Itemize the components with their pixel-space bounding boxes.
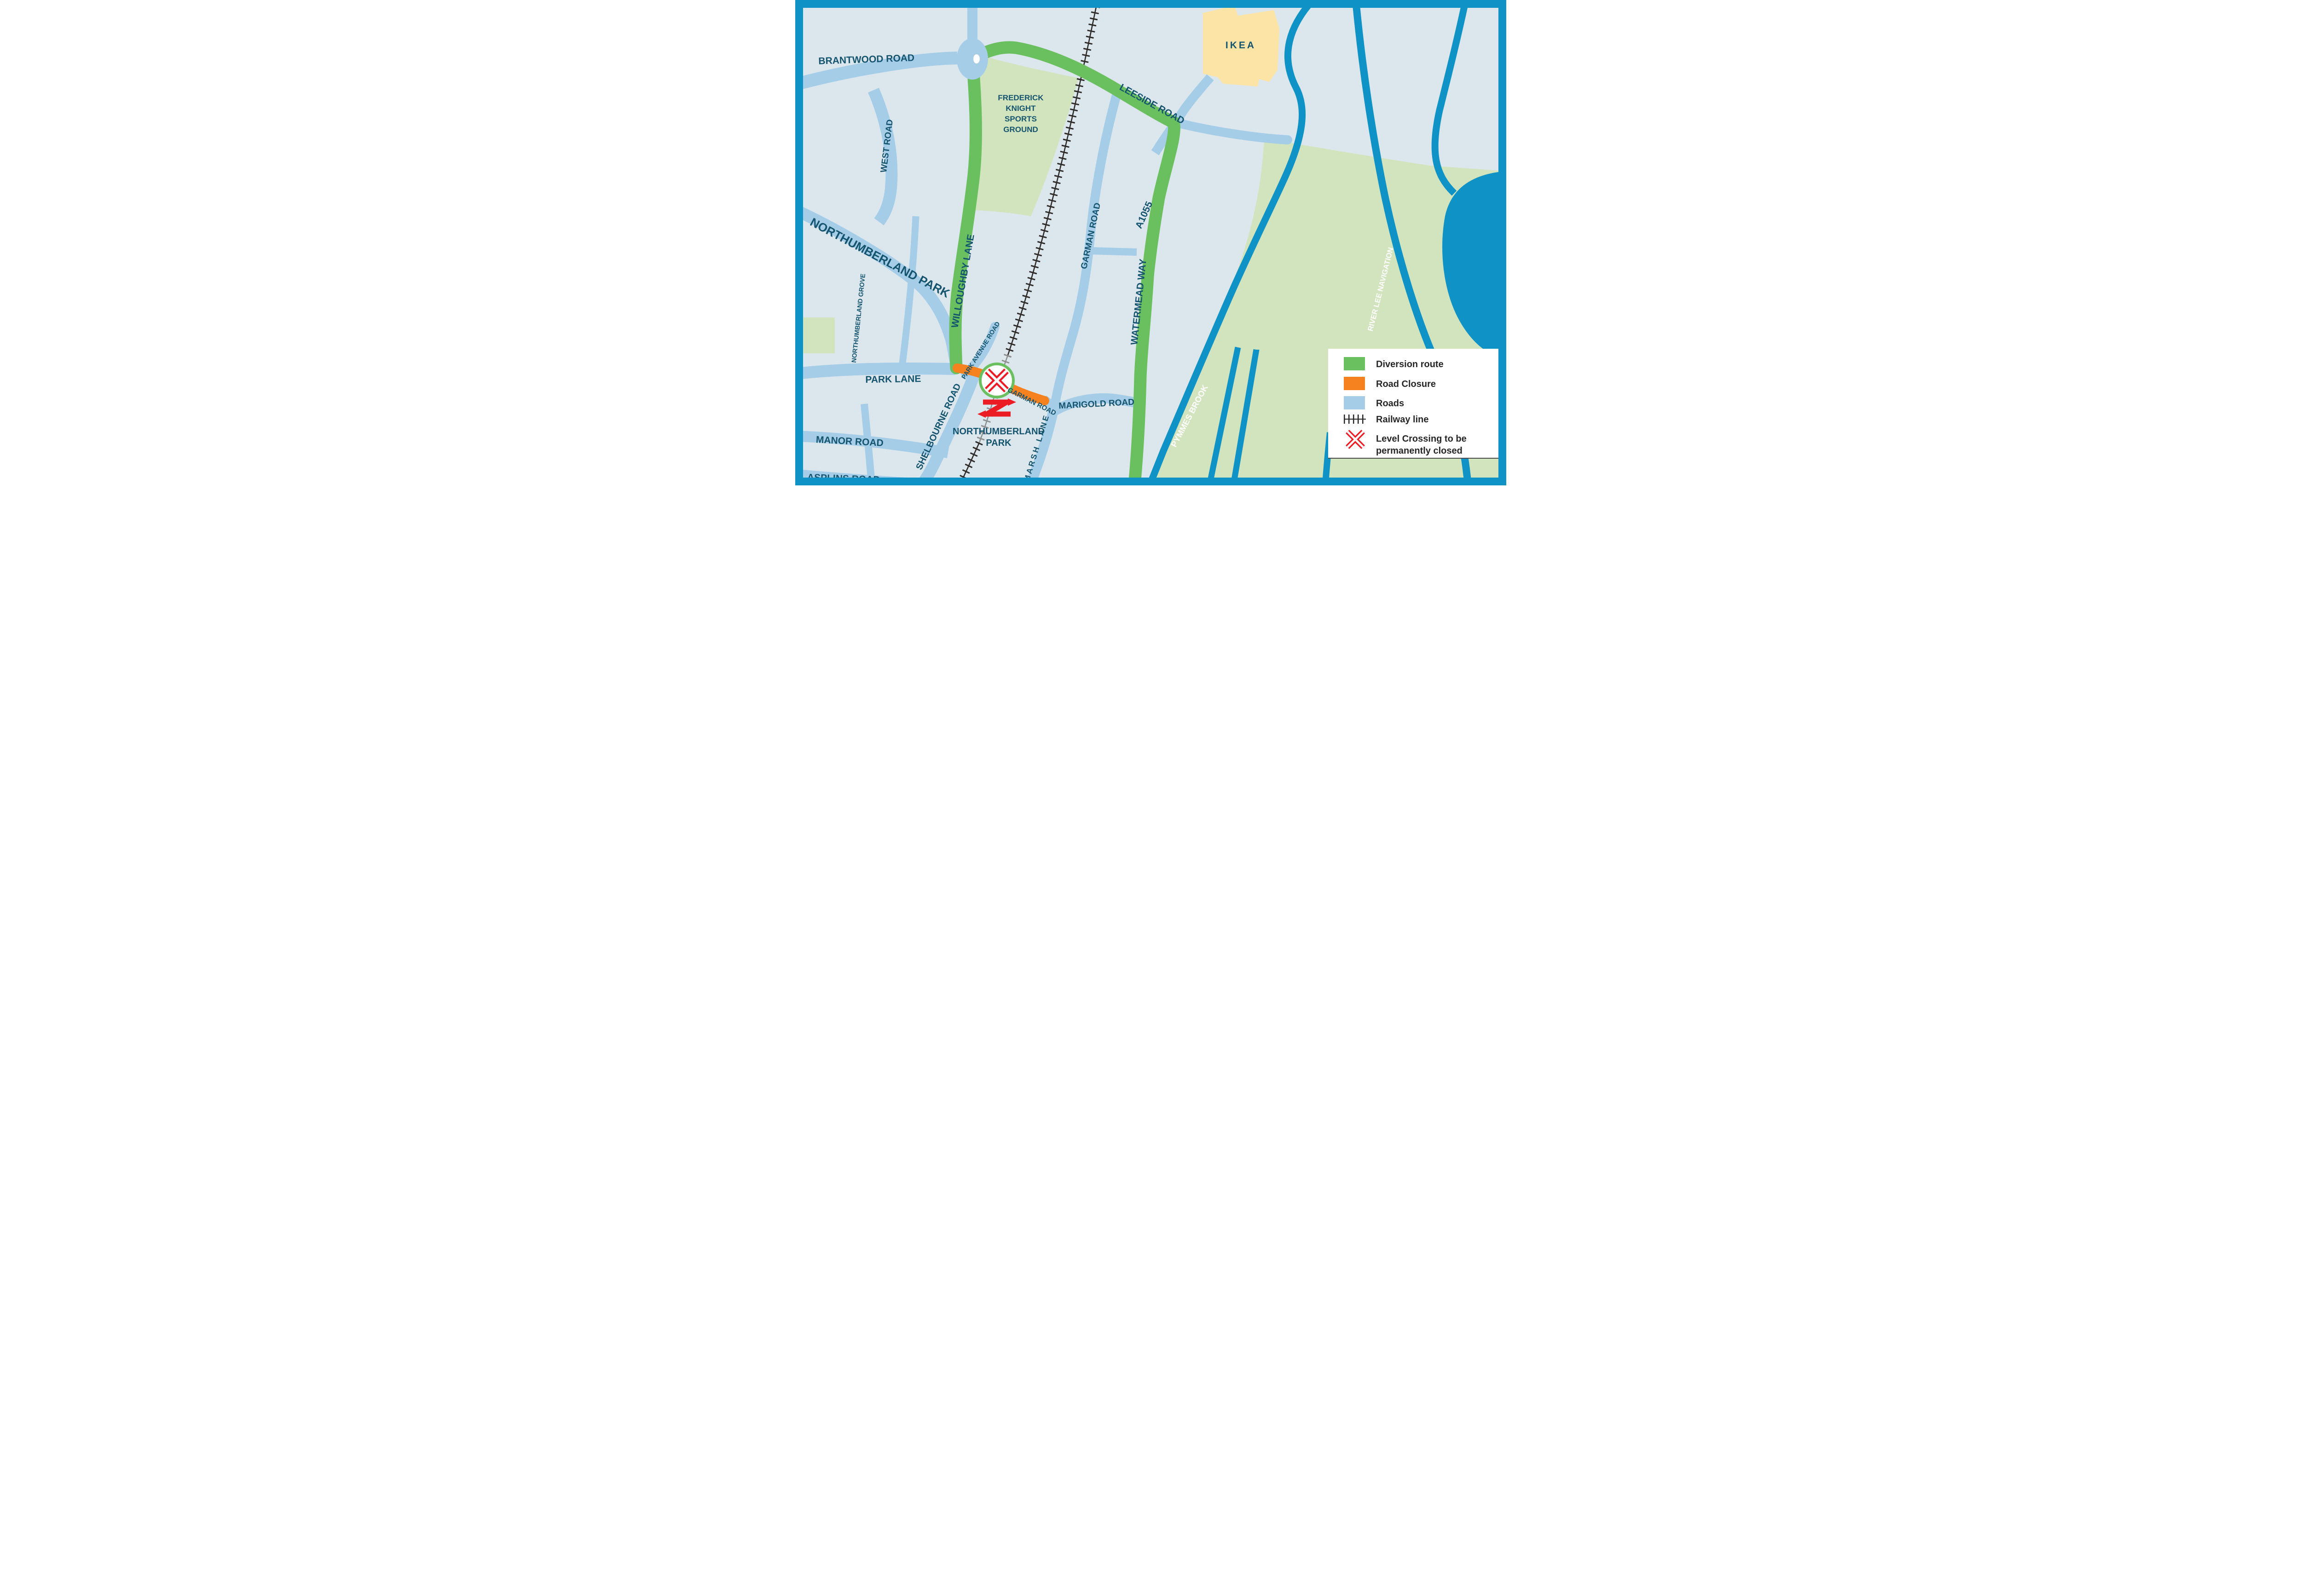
svg-text:PARK: PARK <box>986 438 1012 448</box>
legend-label-crossing-line2: permanently closed <box>1376 446 1463 456</box>
svg-text:GROUND: GROUND <box>1003 125 1038 134</box>
legend-label-closure: Road Closure <box>1376 379 1436 389</box>
legend-label-railway: Railway line <box>1376 415 1429 425</box>
map-canvas: BRANTWOOD ROAD WEST ROAD NORTHUMBERLAND … <box>795 0 1506 485</box>
park-lane-label: PARK LANE <box>865 374 921 385</box>
svg-text:SPORTS: SPORTS <box>1005 115 1037 123</box>
svg-text:FREDERICK: FREDERICK <box>998 93 1044 102</box>
park-lane-road <box>797 369 955 374</box>
svg-text:KNIGHT: KNIGHT <box>1006 104 1036 113</box>
roundabout-island <box>973 54 980 63</box>
garman-watermead-connector <box>1090 251 1137 252</box>
legend-swatch-closure <box>1344 377 1365 390</box>
legend-label-roads: Roads <box>1376 398 1404 409</box>
diversion-map: BRANTWOOD ROAD WEST ROAD NORTHUMBERLAND … <box>795 0 1506 485</box>
svg-text:NORTHUMBERLAND: NORTHUMBERLAND <box>953 426 1045 437</box>
legend-swatch-roads <box>1344 396 1365 409</box>
ikea-label: IKEA <box>1225 40 1255 51</box>
legend-label-crossing-line1: Level Crossing to be <box>1376 434 1467 444</box>
legend: Diversion route Road Closure Roads Railw… <box>1328 349 1498 458</box>
legend-swatch-diversion <box>1344 357 1365 370</box>
roundabout <box>957 38 988 80</box>
legend-label-diversion: Diversion route <box>1376 359 1444 369</box>
